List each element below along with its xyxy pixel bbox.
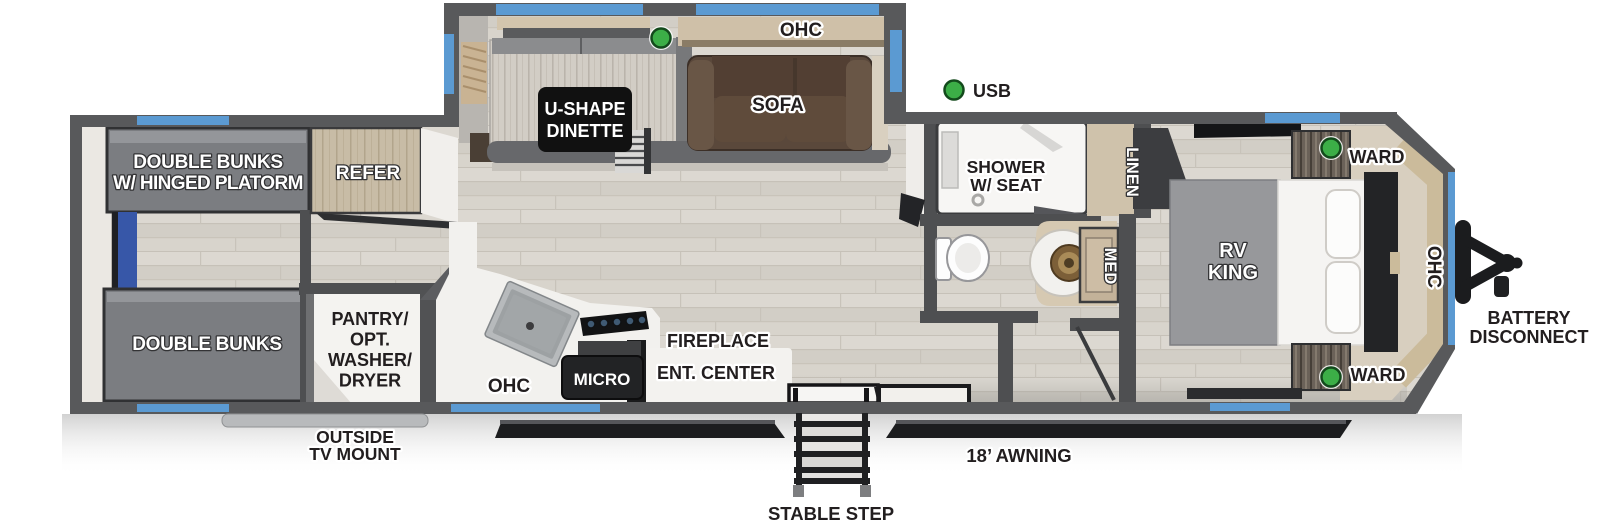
svg-text:DRYER: DRYER [339, 371, 401, 391]
svg-text:OHC: OHC [488, 376, 531, 397]
svg-text:WARD: WARD [1350, 147, 1405, 167]
svg-text:18’ AWNING: 18’ AWNING [966, 445, 1071, 466]
svg-text:OHC: OHC [780, 20, 823, 41]
svg-text:OPT.: OPT. [350, 330, 390, 350]
svg-text:DOUBLE BUNKS: DOUBLE BUNKS [133, 152, 282, 173]
svg-text:LINEN: LINEN [1123, 147, 1141, 197]
svg-text:PANTRY/: PANTRY/ [331, 309, 408, 329]
svg-text:REFER: REFER [336, 163, 401, 184]
svg-text:TV MOUNT: TV MOUNT [309, 444, 401, 464]
svg-text:RV: RV [1219, 240, 1247, 262]
svg-text:KING: KING [1208, 262, 1258, 284]
svg-text:DINETTE: DINETTE [546, 121, 623, 141]
svg-text:ENT. CENTER: ENT. CENTER [657, 363, 775, 383]
svg-text:W/ SEAT: W/ SEAT [970, 175, 1042, 195]
svg-text:STABLE STEP: STABLE STEP [768, 503, 894, 524]
svg-text:SHOWER: SHOWER [967, 157, 1046, 177]
svg-text:WASHER/: WASHER/ [328, 350, 412, 370]
svg-text:USB: USB [973, 81, 1011, 101]
svg-text:BATTERY: BATTERY [1488, 308, 1571, 328]
svg-text:WARD: WARD [1351, 365, 1406, 385]
svg-text:SOFA: SOFA [752, 95, 804, 116]
svg-text:DISCONNECT: DISCONNECT [1469, 327, 1588, 347]
svg-text:MICRO: MICRO [574, 370, 631, 389]
svg-text:W/ HINGED PLATORM: W/ HINGED PLATORM [113, 173, 303, 194]
svg-text:OHC: OHC [1423, 246, 1444, 289]
svg-text:DOUBLE BUNKS: DOUBLE BUNKS [132, 334, 281, 355]
svg-text:MED: MED [1101, 248, 1119, 285]
svg-text:FIREPLACE: FIREPLACE [667, 331, 769, 351]
svg-text:U-SHAPE: U-SHAPE [544, 99, 625, 119]
